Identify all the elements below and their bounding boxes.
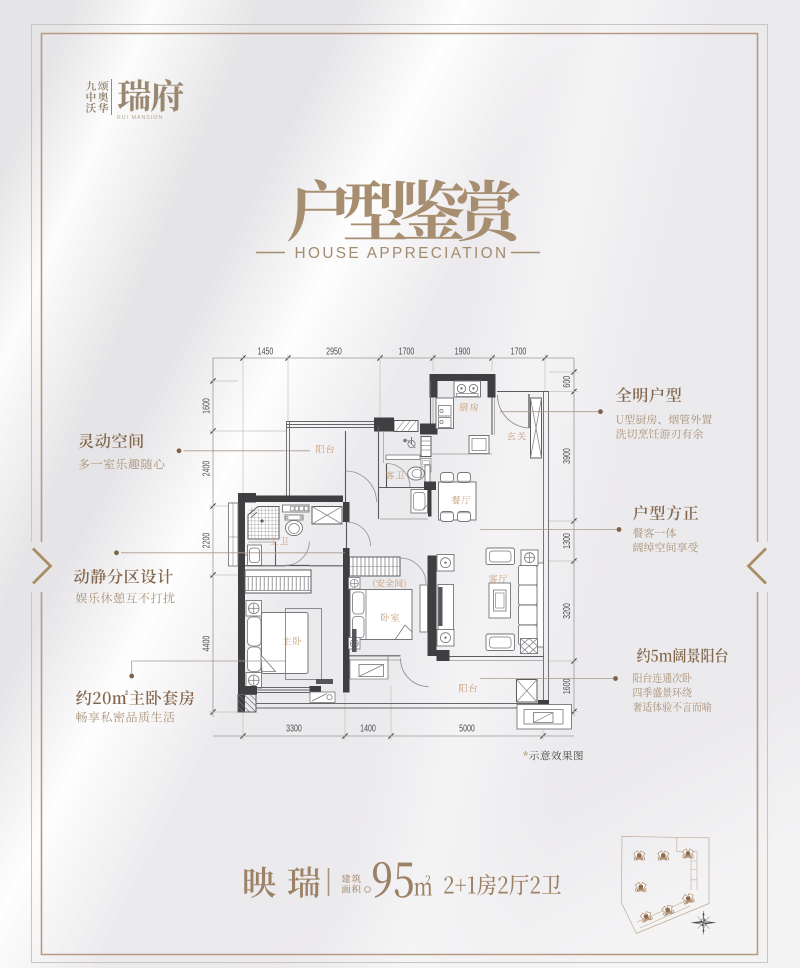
svg-text:3200: 3200 bbox=[561, 603, 572, 619]
svg-text:2400: 2400 bbox=[200, 460, 211, 476]
svg-text:1300: 1300 bbox=[561, 533, 572, 549]
svg-text:3900: 3900 bbox=[561, 448, 572, 464]
svg-text:1400: 1400 bbox=[360, 722, 376, 733]
svg-text:HOUSE APPRECIATION: HOUSE APPRECIATION bbox=[295, 245, 509, 262]
svg-text:5000: 5000 bbox=[459, 722, 475, 733]
svg-text:2950: 2950 bbox=[326, 345, 342, 356]
svg-text:RUI MANSION: RUI MANSION bbox=[117, 115, 163, 121]
svg-text:3300: 3300 bbox=[286, 722, 302, 733]
svg-text:1700: 1700 bbox=[511, 345, 527, 356]
svg-text:1700: 1700 bbox=[399, 345, 415, 356]
svg-text:4400: 4400 bbox=[200, 635, 211, 651]
svg-text:2200: 2200 bbox=[200, 532, 211, 548]
svg-text:1600: 1600 bbox=[200, 398, 211, 414]
svg-text:600: 600 bbox=[561, 376, 572, 388]
svg-text:1900: 1900 bbox=[455, 345, 471, 356]
svg-text:1450: 1450 bbox=[258, 345, 274, 356]
svg-text:1600: 1600 bbox=[561, 678, 572, 694]
